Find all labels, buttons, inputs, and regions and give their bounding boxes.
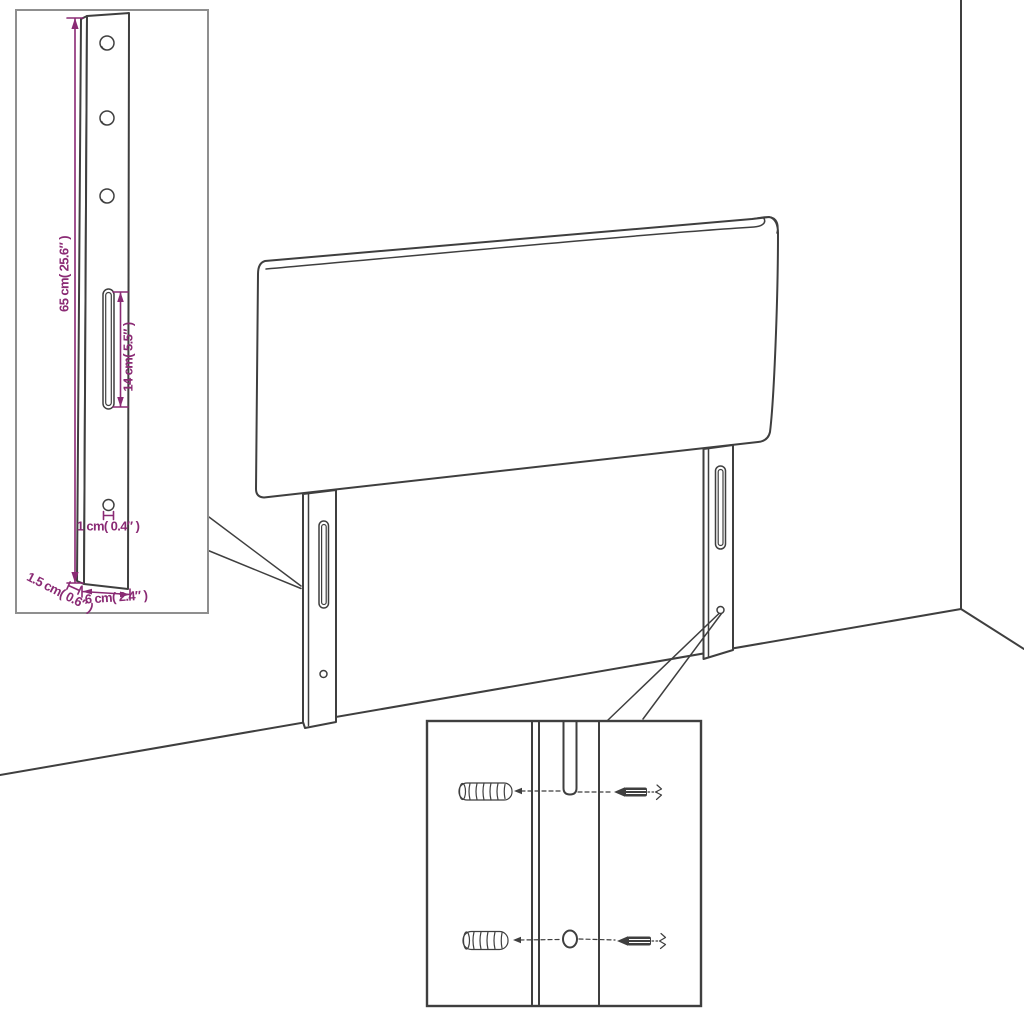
slot-length-dimension-label: 14 cm( 5.5″ ): [121, 322, 136, 391]
floor-wall-line-right: [961, 609, 1024, 649]
headboard-panel: [256, 217, 778, 498]
mounting-detail-inset: [427, 721, 701, 1006]
left-leg-callout-lines: [207, 517, 301, 589]
left-leg-slot: [319, 521, 329, 608]
leg-detail-slot: [103, 289, 114, 409]
headboard-assembly-diagram: 65 cm( 25.6″ ) 14 cm( 5.5″ ) 1 cm( 0.4″ …: [0, 0, 1024, 1024]
right-leg-slot: [716, 466, 726, 549]
right-mounting-leg: [704, 445, 734, 659]
callout-lines: [207, 517, 722, 720]
left-mounting-leg: [303, 490, 336, 728]
hole-diameter-dimension-label: 1 cm( 0.4″ ): [77, 519, 140, 534]
leg-height-dimension-label: 65 cm( 25.6″ ): [57, 236, 72, 312]
headboard-outline: [256, 217, 778, 498]
diagram-linework: [0, 0, 1024, 1024]
